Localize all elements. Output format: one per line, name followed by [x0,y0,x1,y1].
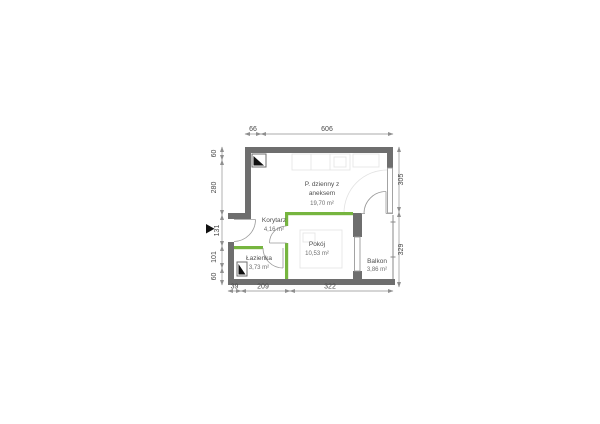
dim-label-right-1: 329 [398,244,405,256]
dim-label-left-1: 280 [211,182,218,194]
room-label-bathroom: Łazienka [246,255,272,262]
wall-left-upper [245,153,251,213]
dim-label-bottom-1: 209 [257,284,269,291]
room-label-bedroom: Pokój [309,241,325,248]
kitchen-counter-ghost [292,154,350,170]
window-living-east [388,168,393,213]
floorplan-canvas: 66 606 60 280 131 101 60 305 329 39 209 … [0,0,600,424]
wall-jog [228,213,251,219]
dim-label-left-0: 60 [211,150,218,158]
room-area-corridor: 4,16 m² [264,227,284,233]
window-swing-ghost [344,170,387,213]
dim-label-left-2: 131 [214,225,221,237]
partition-corridor-lower [285,243,288,279]
room-area-bedroom: 10,53 m² [305,251,329,257]
room-labels: P. dzienny z aneksem 19,70 m² Korytarz 4… [246,181,387,273]
wall-top [245,147,393,153]
room-label-corridor: Korytarz [262,217,286,224]
kitchen-sink-ghost [334,157,346,167]
dim-label-top-1: 606 [321,126,333,133]
entrance-door-arc [234,220,256,242]
floorplan-drawing: 66 606 60 280 131 101 60 305 329 39 209 … [0,0,600,424]
wall-left-lower [228,242,234,285]
dim-label-bottom-2: 322 [324,284,336,291]
bed-ghost [300,230,342,268]
balcony-door-arc [364,192,386,214]
dim-label-bottom-0: 39 [231,284,239,291]
room-area-living: 19,70 m² [310,201,334,207]
wall-balcony-divider-upper [353,213,362,237]
room-label-balcony: Balkon [367,258,387,265]
dim-label-right-0: 305 [398,174,405,186]
room-area-balcony: 3,86 m² [367,267,387,273]
dim-label-top-0: 66 [249,126,257,133]
dim-label-left-3: 101 [211,251,218,263]
partition-bedroom-north [287,212,353,215]
room-label-living-1: P. dzienny z [305,181,340,188]
dim-label-left-4: 60 [211,273,218,281]
wall-right-upper [387,147,393,168]
balcony-balustrade [391,215,396,279]
room-area-bathroom: 3,73 m² [249,265,269,271]
partition-bathroom-north [234,246,263,249]
room-label-living-2: aneksem [309,190,335,197]
window-bedroom-balcony [355,237,361,271]
kitchen-cabinet-ghost [353,154,379,167]
wall-bottom [228,279,395,285]
wall-balcony-divider-lower [353,271,362,279]
